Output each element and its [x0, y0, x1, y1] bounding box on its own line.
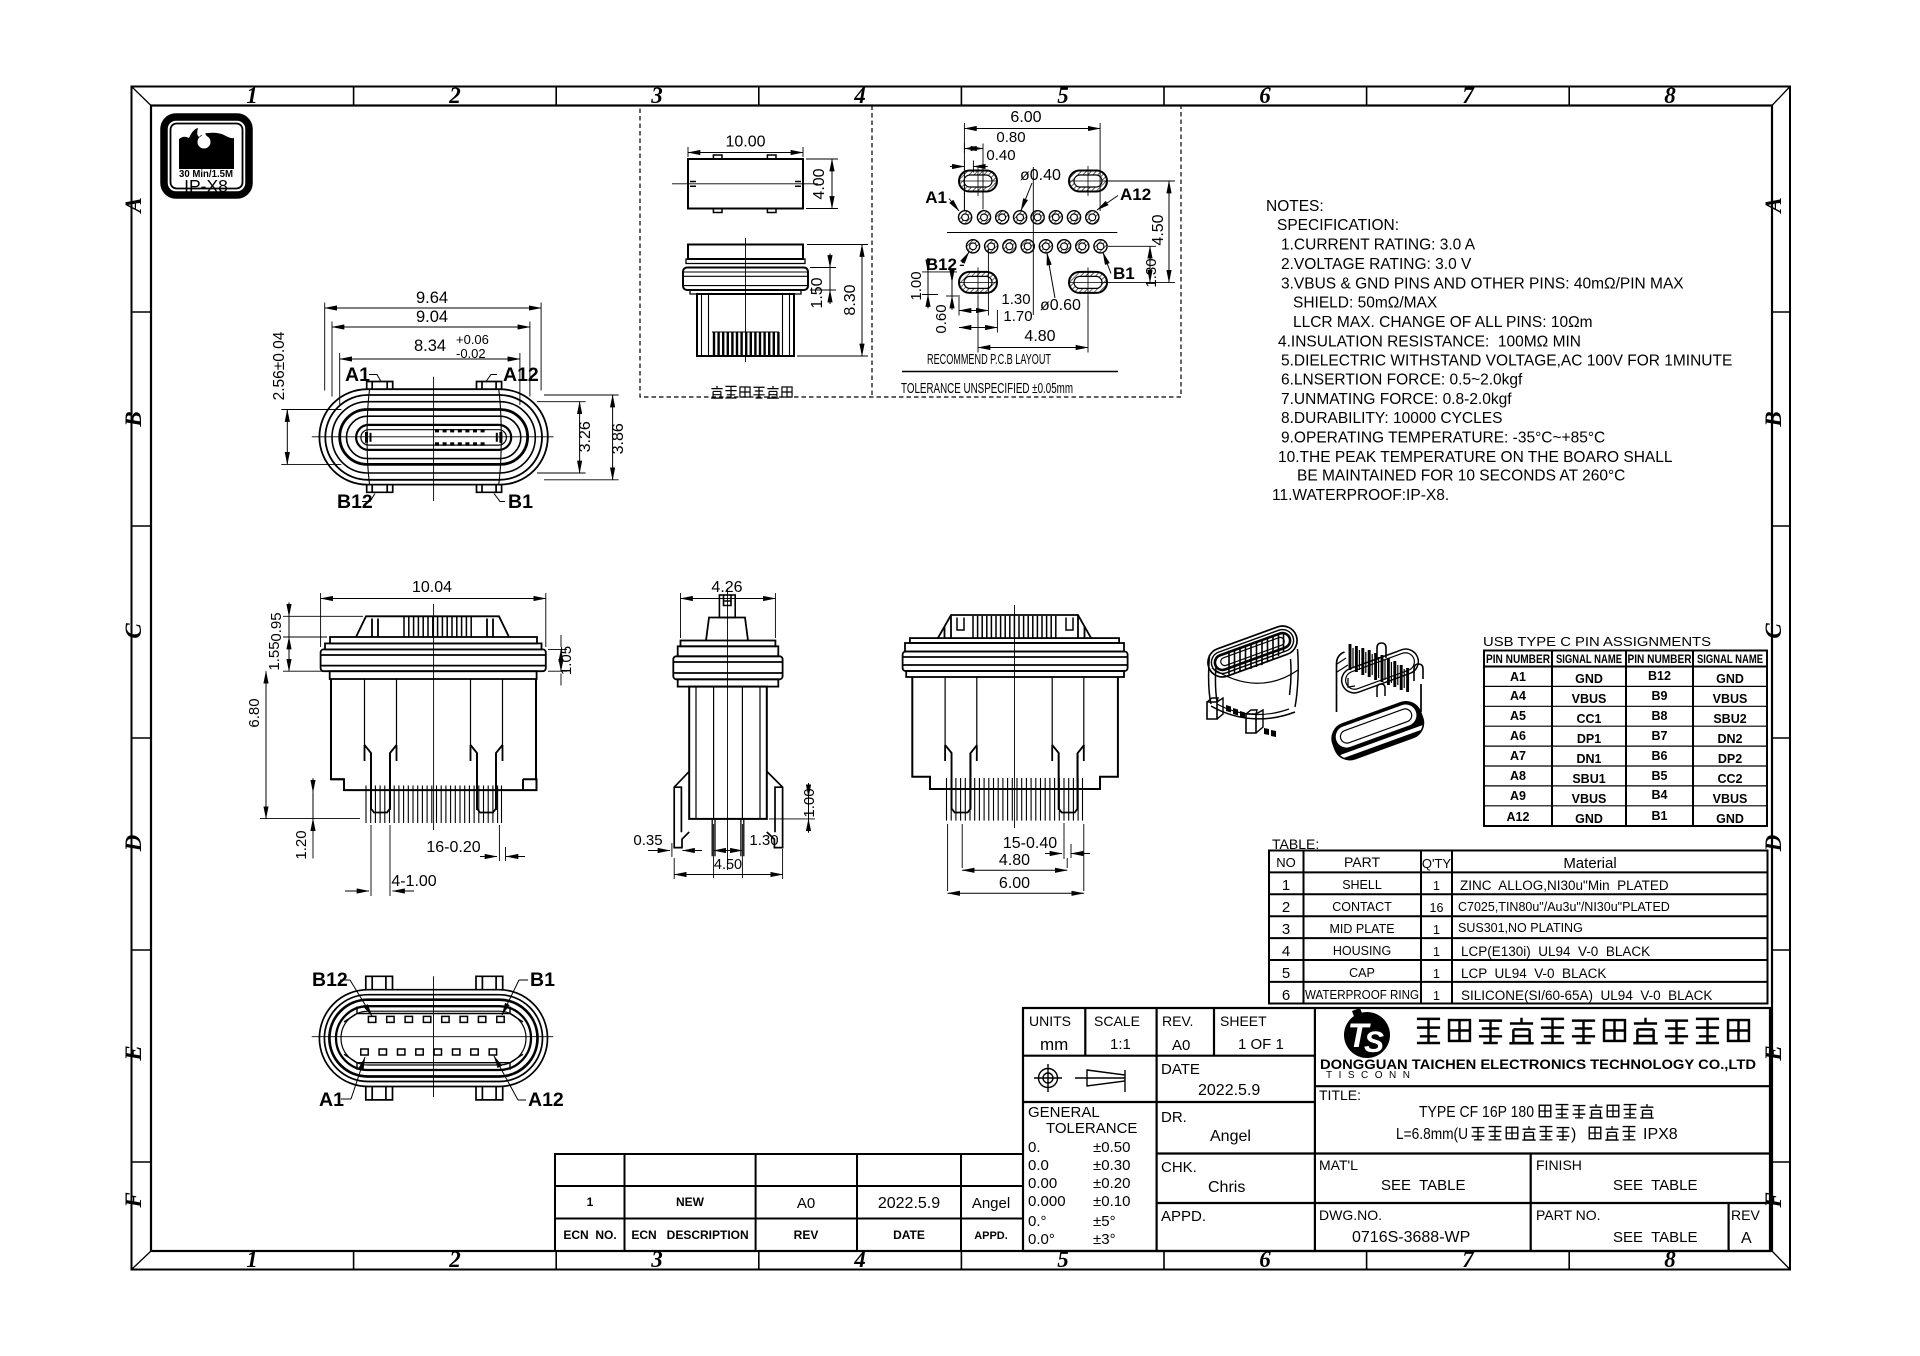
- svg-text:A0: A0: [797, 1195, 815, 1212]
- svg-text:WATERPROOF RING: WATERPROOF RING: [1305, 988, 1419, 1002]
- svg-text:8.30: 8.30: [842, 284, 859, 315]
- svg-text:VBUS: VBUS: [1713, 792, 1748, 806]
- svg-text:ø0.40: ø0.40: [1020, 167, 1061, 184]
- svg-text:Angel: Angel: [1210, 1128, 1251, 1145]
- svg-text:SBU2: SBU2: [1713, 712, 1746, 726]
- svg-text:A: A: [1741, 1230, 1752, 1247]
- svg-text:A12: A12: [503, 364, 539, 386]
- svg-text:CC2: CC2: [1717, 772, 1742, 786]
- svg-text:SIGNAL NAME: SIGNAL NAME: [1556, 654, 1622, 666]
- svg-text:16: 16: [1430, 901, 1444, 915]
- svg-text:B8: B8: [1652, 709, 1668, 723]
- svg-text:4.80: 4.80: [1024, 328, 1055, 345]
- svg-text:1.55: 1.55: [266, 641, 283, 670]
- svg-text:SEE TABLE: SEE TABLE: [1613, 1229, 1698, 1246]
- svg-text:B9: B9: [1652, 689, 1668, 703]
- svg-text:B7: B7: [1652, 729, 1668, 743]
- svg-text:8.34: 8.34: [414, 337, 446, 355]
- svg-text:2: 2: [1282, 899, 1290, 916]
- svg-text:ECN NO.: ECN NO.: [563, 1228, 616, 1242]
- svg-text:6: 6: [1282, 987, 1290, 1004]
- svg-text:4.80: 4.80: [999, 852, 1030, 869]
- svg-text:4.50: 4.50: [714, 857, 742, 873]
- svg-text:1.70: 1.70: [1003, 308, 1032, 325]
- svg-text:1: 1: [246, 83, 258, 108]
- svg-text:1: 1: [1433, 945, 1440, 959]
- svg-text:1:1: 1:1: [1110, 1036, 1131, 1053]
- svg-text:Material: Material: [1563, 855, 1616, 872]
- svg-text:MAT'L: MAT'L: [1319, 1157, 1358, 1173]
- svg-text:TOLERANCE: TOLERANCE: [1046, 1120, 1137, 1137]
- svg-text:1.30: 1.30: [1001, 291, 1030, 308]
- svg-text:B4: B4: [1652, 788, 1668, 802]
- svg-text:1.00: 1.00: [801, 788, 818, 817]
- svg-text:1: 1: [1433, 923, 1440, 937]
- svg-text:B5: B5: [1652, 769, 1668, 783]
- svg-text:E: E: [1761, 1045, 1786, 1061]
- svg-text:VBUS: VBUS: [1713, 692, 1748, 706]
- svg-text:0.000: 0.000: [1028, 1193, 1066, 1210]
- svg-text:CC1: CC1: [1576, 712, 1601, 726]
- svg-text:1: 1: [587, 1195, 594, 1209]
- svg-text:UNITS: UNITS: [1029, 1013, 1071, 1029]
- svg-text:1: 1: [1282, 877, 1290, 894]
- svg-text:3.VBUS & GND PINS AND OTHER PI: 3.VBUS & GND PINS AND OTHER PINS: 40mΩ/P…: [1281, 276, 1684, 293]
- svg-text:DATE: DATE: [1161, 1061, 1200, 1078]
- svg-text:GND: GND: [1575, 812, 1603, 826]
- svg-text:SILICONE(SI/60-65A) UL94 V-0: SILICONE(SI/60-65A) UL94 V-0 BLACK: [1461, 988, 1712, 1003]
- svg-text:F: F: [1761, 1192, 1786, 1208]
- svg-text:1.30: 1.30: [1143, 258, 1160, 287]
- svg-text:1: 1: [246, 1247, 258, 1272]
- svg-text:6: 6: [1259, 83, 1271, 108]
- svg-text:DP2: DP2: [1718, 752, 1742, 766]
- svg-text:±3°: ±3°: [1093, 1231, 1116, 1248]
- svg-text:SEE TABLE: SEE TABLE: [1613, 1177, 1698, 1194]
- svg-text:B1: B1: [1113, 264, 1135, 283]
- svg-text:4: 4: [853, 83, 866, 108]
- svg-text:C7025,TIN80u"/Au3u"/NI30u"PLAT: C7025,TIN80u"/Au3u"/NI30u"PLATED: [1458, 900, 1670, 914]
- svg-text:2: 2: [448, 83, 461, 108]
- svg-text:1: 1: [1433, 967, 1440, 981]
- svg-text:A5: A5: [1510, 709, 1526, 723]
- svg-text:1.20: 1.20: [293, 830, 310, 859]
- svg-text:B1: B1: [1652, 809, 1668, 823]
- svg-text:DN2: DN2: [1717, 732, 1742, 746]
- svg-text:6.00: 6.00: [1010, 109, 1041, 126]
- svg-text:PART NO.: PART NO.: [1536, 1207, 1601, 1223]
- svg-text:5.DIELECTRIC WITHSTAND VOLTAGE: 5.DIELECTRIC WITHSTAND VOLTAGE,AC 100V F…: [1281, 353, 1732, 370]
- svg-text:4.50: 4.50: [1150, 214, 1167, 245]
- svg-text:A7: A7: [1510, 749, 1526, 763]
- svg-text:SHIELD: 50mΩ/MAX: SHIELD: 50mΩ/MAX: [1293, 295, 1438, 312]
- svg-text:CAP: CAP: [1349, 966, 1375, 980]
- svg-text:0716S-3688-WP: 0716S-3688-WP: [1352, 1229, 1470, 1246]
- svg-text:0.0: 0.0: [1028, 1157, 1049, 1174]
- svg-text:E: E: [121, 1045, 146, 1061]
- svg-text:HOUSING: HOUSING: [1333, 944, 1391, 958]
- svg-text:DWG.NO.: DWG.NO.: [1319, 1207, 1382, 1223]
- svg-text:VBUS: VBUS: [1572, 792, 1607, 806]
- svg-text:16-0.20: 16-0.20: [426, 839, 480, 856]
- svg-text:4.INSULATION RESISTANCE: 100M: 4.INSULATION RESISTANCE: 100MΩ MIN: [1278, 334, 1581, 351]
- svg-text:0.60: 0.60: [933, 304, 950, 333]
- svg-text:SBU1: SBU1: [1572, 772, 1605, 786]
- svg-text:A0: A0: [1172, 1037, 1190, 1054]
- svg-text:MID PLATE: MID PLATE: [1329, 922, 1394, 936]
- svg-text:ø0.60: ø0.60: [1040, 297, 1081, 314]
- svg-text:A1: A1: [925, 188, 947, 207]
- svg-text:0.: 0.: [1028, 1139, 1041, 1156]
- svg-text:1.CURRENT RATING: 3.0 A: 1.CURRENT RATING: 3.0 A: [1281, 237, 1476, 254]
- svg-text:Chris: Chris: [1208, 1179, 1245, 1196]
- svg-text:L=6.8mm(U: L=6.8mm(U: [1396, 1126, 1468, 1143]
- svg-text:4: 4: [1282, 943, 1290, 960]
- svg-text:1: 1: [1433, 879, 1440, 893]
- svg-text:APPD.: APPD.: [1161, 1208, 1206, 1225]
- svg-text:11.WATERPROOF:IP-X8.: 11.WATERPROOF:IP-X8.: [1272, 487, 1449, 504]
- svg-text:-: -: [959, 255, 965, 274]
- svg-text:6.80: 6.80: [246, 698, 263, 727]
- svg-text:0.00: 0.00: [1028, 1175, 1057, 1192]
- svg-text:0.95: 0.95: [268, 612, 285, 641]
- svg-text:1.00: 1.00: [908, 271, 925, 300]
- svg-text:TOLERANCE UNSPECIFIED ±0.05mm: TOLERANCE UNSPECIFIED ±0.05mm: [901, 381, 1073, 397]
- svg-text:10.00: 10.00: [725, 134, 765, 151]
- svg-text:7: 7: [1462, 83, 1475, 108]
- svg-text:F: F: [121, 1192, 146, 1208]
- svg-text:REV: REV: [794, 1228, 819, 1242]
- svg-text:10.THE PEAK TEMPERATURE ON THE: 10.THE PEAK TEMPERATURE ON THE BOARO SHA…: [1278, 449, 1673, 466]
- svg-text:GND: GND: [1716, 812, 1744, 826]
- svg-text:2.56±0.04: 2.56±0.04: [271, 331, 288, 400]
- svg-text:±0.50: ±0.50: [1093, 1139, 1130, 1156]
- svg-text:TITLE:: TITLE:: [1319, 1087, 1361, 1103]
- svg-text:2022.5.9: 2022.5.9: [878, 1195, 940, 1212]
- svg-text:4.26: 4.26: [711, 579, 742, 596]
- svg-text:IP-X8: IP-X8: [184, 176, 228, 196]
- svg-text:2: 2: [448, 1247, 461, 1272]
- svg-text:±0.30: ±0.30: [1093, 1157, 1130, 1174]
- svg-text:A: A: [1761, 197, 1786, 214]
- svg-text:SCALE: SCALE: [1094, 1013, 1140, 1029]
- svg-text:0.35: 0.35: [633, 832, 662, 849]
- svg-text:D: D: [121, 834, 146, 852]
- svg-text:): ): [1571, 1126, 1576, 1143]
- svg-text:APPD.: APPD.: [974, 1230, 1008, 1242]
- svg-text:A8: A8: [1510, 769, 1526, 783]
- svg-text:7.UNMATING FORCE: 0.8-2.0kgf: 7.UNMATING FORCE: 0.8-2.0kgf: [1281, 391, 1512, 408]
- svg-text:0.°: 0.°: [1028, 1213, 1047, 1230]
- svg-text:SPECIFICATION:: SPECIFICATION:: [1277, 217, 1399, 234]
- svg-text:A12: A12: [528, 1089, 564, 1111]
- svg-text:4-1.00: 4-1.00: [391, 873, 436, 890]
- svg-text:±5°: ±5°: [1093, 1213, 1116, 1230]
- svg-text:SIGNAL NAME: SIGNAL NAME: [1697, 654, 1763, 666]
- svg-text:SHEET: SHEET: [1220, 1013, 1267, 1029]
- svg-text:9.64: 9.64: [416, 289, 448, 307]
- svg-text:REV: REV: [1731, 1207, 1760, 1223]
- svg-text:3: 3: [1282, 921, 1290, 938]
- svg-text:2022.5.9: 2022.5.9: [1198, 1082, 1260, 1099]
- svg-text:B1: B1: [508, 491, 533, 513]
- svg-text:DP1: DP1: [1577, 732, 1601, 746]
- svg-text:A12: A12: [1507, 810, 1530, 824]
- svg-text:8.DURABILITY: 10000 CYCLES: 8.DURABILITY: 10000 CYCLES: [1281, 410, 1502, 427]
- svg-text:LCP(E130i) UL94 V-0 BLACK: LCP(E130i) UL94 V-0 BLACK: [1461, 944, 1650, 959]
- svg-text:5: 5: [1282, 965, 1290, 982]
- svg-text:SEE TABLE: SEE TABLE: [1381, 1177, 1466, 1194]
- svg-text:LLCR MAX. CHANGE OF ALL PINS:: LLCR MAX. CHANGE OF ALL PINS: 10Ωm: [1293, 314, 1593, 331]
- svg-text:ECN DESCRIPTION: ECN DESCRIPTION: [631, 1228, 748, 1242]
- svg-text:Angel: Angel: [972, 1195, 1010, 1212]
- svg-text:9.04: 9.04: [416, 308, 448, 326]
- svg-text:A1: A1: [319, 1089, 344, 1111]
- svg-text:10.04: 10.04: [412, 579, 452, 596]
- svg-text:BE MAINTAINED FOR 10 SECONDS A: BE MAINTAINED FOR 10 SECONDS AT 260°C: [1297, 468, 1625, 485]
- svg-text:B12: B12: [1648, 669, 1671, 683]
- svg-text:LCP UL94 V-0 BLACK: LCP UL94 V-0 BLACK: [1461, 966, 1606, 981]
- svg-text:8: 8: [1664, 83, 1676, 108]
- svg-text:SUS301,NO PLATING: SUS301,NO PLATING: [1458, 921, 1583, 935]
- svg-text:RECOMMEND P.C.B LAYOUT: RECOMMEND P.C.B LAYOUT: [927, 352, 1051, 368]
- svg-text:A1: A1: [345, 364, 370, 386]
- svg-text:S: S: [1364, 1026, 1384, 1059]
- svg-text:ZINC ALLOG,NI30u"Min PLATED: ZINC ALLOG,NI30u"Min PLATED: [1460, 878, 1669, 893]
- svg-text:FINISH: FINISH: [1536, 1157, 1582, 1173]
- svg-text:B1: B1: [530, 969, 555, 991]
- svg-text:A1: A1: [1510, 670, 1526, 684]
- svg-text:mm: mm: [1040, 1035, 1068, 1054]
- svg-text:NOTES:: NOTES:: [1266, 198, 1324, 215]
- svg-text:+0.06: +0.06: [456, 332, 489, 347]
- svg-text:A6: A6: [1510, 729, 1526, 743]
- svg-text:NEW: NEW: [676, 1195, 705, 1209]
- svg-text:0.80: 0.80: [996, 129, 1025, 146]
- svg-text:B6: B6: [1652, 749, 1668, 763]
- svg-text:0.0°: 0.0°: [1028, 1231, 1055, 1248]
- svg-text:IPX8: IPX8: [1643, 1126, 1678, 1143]
- svg-text:9.OPERATING TEMPERATURE: -35°C: 9.OPERATING TEMPERATURE: -35°C~+85°C: [1281, 430, 1605, 447]
- svg-text:DATE: DATE: [893, 1228, 925, 1242]
- svg-text:A9: A9: [1510, 789, 1526, 803]
- svg-text:USB TYPE C PIN ASSIGNMENTS: USB TYPE C PIN ASSIGNMENTS: [1483, 635, 1711, 649]
- svg-text:CHK.: CHK.: [1161, 1159, 1197, 1176]
- svg-text:NO: NO: [1276, 855, 1296, 870]
- svg-text:DONGGUAN TAICHEN ELECTRONICS T: DONGGUAN TAICHEN ELECTRONICS TECHNOLOGY …: [1320, 1057, 1756, 1072]
- svg-text:1 OF 1: 1 OF 1: [1238, 1036, 1284, 1053]
- svg-text:DR.: DR.: [1161, 1109, 1187, 1126]
- svg-text:2.VOLTAGE RATING: 3.0 V: 2.VOLTAGE RATING: 3.0 V: [1281, 256, 1472, 273]
- svg-text:1: 1: [1433, 989, 1440, 1003]
- svg-text:C: C: [1761, 623, 1786, 639]
- svg-text:B: B: [1761, 411, 1786, 427]
- svg-text:GND: GND: [1716, 672, 1744, 686]
- svg-text:SHELL: SHELL: [1342, 878, 1382, 892]
- svg-text:PIN NUMBER: PIN NUMBER: [1628, 654, 1693, 666]
- svg-text:DN1: DN1: [1576, 752, 1601, 766]
- svg-text:6.LNSERTION FORCE: 0.5~2.0kgf: 6.LNSERTION FORCE: 0.5~2.0kgf: [1281, 372, 1523, 389]
- svg-text:1.30: 1.30: [749, 832, 778, 849]
- svg-text:3: 3: [650, 83, 663, 108]
- svg-text:B: B: [121, 411, 146, 427]
- svg-text:TYPE CF 16P 180: TYPE CF 16P 180: [1419, 1104, 1534, 1121]
- svg-text:6.00: 6.00: [999, 875, 1030, 892]
- svg-text:GND: GND: [1575, 672, 1603, 686]
- svg-text:±0.20: ±0.20: [1093, 1175, 1130, 1192]
- svg-text:GENERAL: GENERAL: [1028, 1104, 1100, 1121]
- svg-text:Q'TY: Q'TY: [1422, 856, 1452, 871]
- svg-text:5: 5: [1057, 83, 1069, 108]
- svg-text:PIN NUMBER: PIN NUMBER: [1486, 654, 1551, 666]
- svg-text:A12: A12: [1120, 185, 1151, 204]
- svg-text:C: C: [121, 623, 146, 639]
- svg-text:A: A: [121, 197, 146, 214]
- svg-text:0.40: 0.40: [986, 147, 1015, 164]
- svg-text:A4: A4: [1510, 689, 1526, 703]
- svg-text:VBUS: VBUS: [1572, 692, 1607, 706]
- svg-text:±0.10: ±0.10: [1093, 1193, 1130, 1210]
- svg-text:REV.: REV.: [1162, 1013, 1193, 1029]
- svg-text:PART: PART: [1344, 854, 1380, 870]
- svg-text:4.00: 4.00: [811, 168, 828, 199]
- svg-text:1.50: 1.50: [809, 277, 826, 308]
- svg-text:15-0.40: 15-0.40: [1003, 835, 1057, 852]
- svg-text:CONTACT: CONTACT: [1332, 900, 1392, 914]
